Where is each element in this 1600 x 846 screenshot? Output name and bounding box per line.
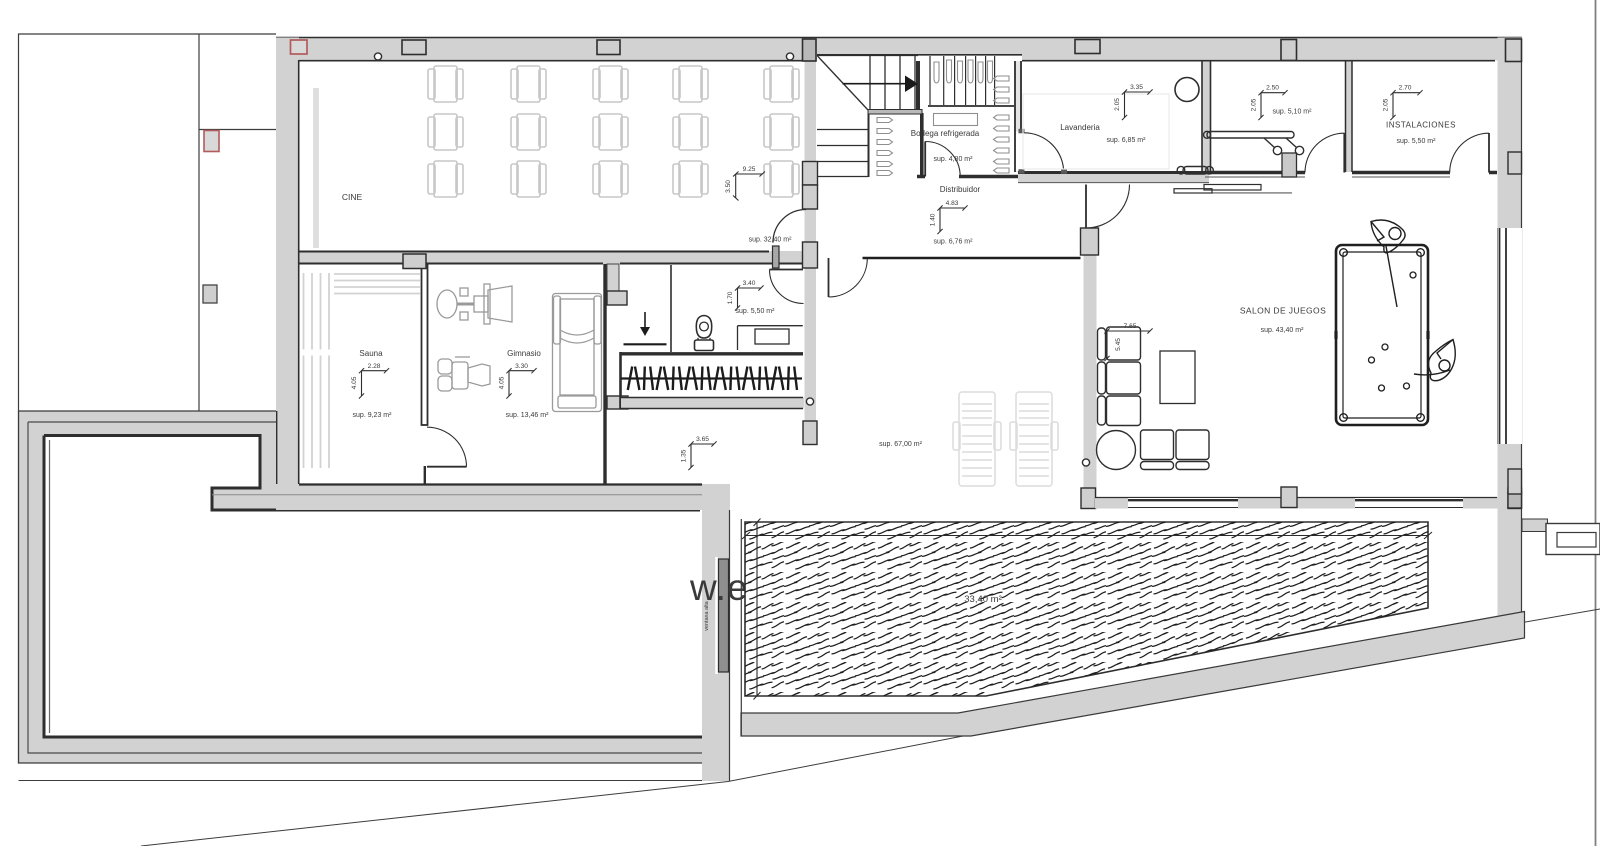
svg-text:2.05: 2.05 [1383, 98, 1390, 111]
svg-text:sup. 43,40 m²: sup. 43,40 m² [1261, 327, 1304, 334]
svg-text:sup. 32,40 m²: sup. 32,40 m² [749, 237, 792, 244]
svg-text:1.70: 1.70 [727, 291, 734, 304]
svg-text:2.50: 2.50 [1266, 85, 1279, 92]
svg-text:sup. 13,46 m²: sup. 13,46 m² [506, 412, 549, 419]
svg-text:33,40 m²: 33,40 m² [964, 594, 1002, 605]
svg-text:SALON DE JUEGOS: SALON DE JUEGOS [1240, 306, 1326, 316]
svg-text:3.65: 3.65 [696, 436, 709, 443]
svg-text:3.40: 3.40 [743, 280, 756, 287]
svg-text:9.25: 9.25 [743, 166, 756, 173]
svg-text:sup. 67,00 m²: sup. 67,00 m² [879, 441, 922, 448]
svg-text:7.65: 7.65 [1124, 323, 1137, 330]
svg-text:Distribuidor: Distribuidor [940, 185, 981, 194]
svg-text:3.50: 3.50 [725, 180, 732, 193]
svg-text:2.28: 2.28 [368, 363, 381, 370]
svg-text:2.05: 2.05 [1251, 98, 1258, 111]
svg-text:INSTALACIONES: INSTALACIONES [1386, 121, 1456, 130]
svg-text:sup. 6,85 m²: sup. 6,85 m² [1107, 137, 1147, 144]
svg-text:sup. 4,80 m²: sup. 4,80 m² [934, 156, 974, 163]
svg-text:3.35: 3.35 [1130, 84, 1143, 91]
svg-text:CINE: CINE [342, 192, 363, 202]
svg-text:1.40: 1.40 [930, 213, 937, 226]
svg-text:4.05: 4.05 [499, 376, 506, 389]
svg-text:sup. 5,10 m²: sup. 5,10 m² [1273, 109, 1313, 116]
svg-text:Gimnasio: Gimnasio [507, 349, 541, 358]
svg-text:3.30: 3.30 [515, 363, 528, 370]
svg-text:5.45: 5.45 [1115, 338, 1122, 351]
svg-text:sup. 9,23 m²: sup. 9,23 m² [353, 412, 393, 419]
svg-text:Bodega refrigerada: Bodega refrigerada [911, 129, 980, 138]
svg-text:4.05: 4.05 [351, 376, 358, 389]
svg-text:sup. 5,50 m²: sup. 5,50 m² [1397, 138, 1437, 145]
svg-text:Sauna: Sauna [359, 349, 383, 358]
svg-text:sup. 6,76 m²: sup. 6,76 m² [934, 239, 974, 246]
svg-text:sup. 5,50 m²: sup. 5,50 m² [736, 308, 776, 315]
svg-text:w.e: w.e [689, 567, 749, 608]
svg-text:2.70: 2.70 [1399, 85, 1412, 92]
svg-text:1.35: 1.35 [681, 449, 688, 462]
svg-text:2.05: 2.05 [1114, 98, 1121, 111]
svg-text:Lavanderia: Lavanderia [1060, 123, 1100, 132]
svg-text:4.83: 4.83 [946, 200, 959, 207]
